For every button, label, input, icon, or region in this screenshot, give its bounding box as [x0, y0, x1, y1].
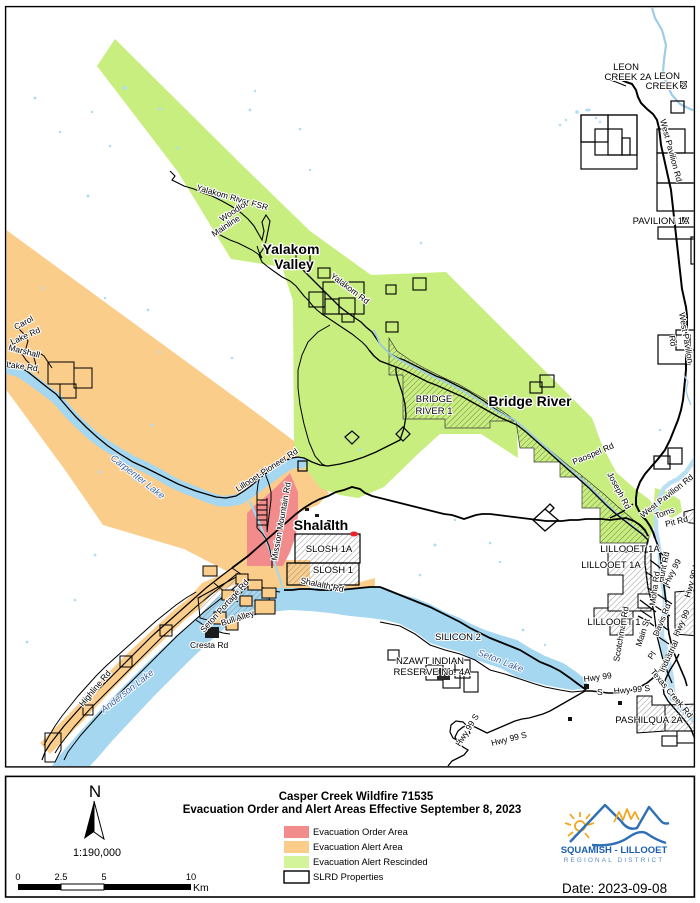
svg-text:Valley: Valley — [274, 256, 314, 272]
svg-text:LILLOOET 1A: LILLOOET 1A — [581, 560, 641, 571]
svg-text:Evacuation Order and Alert Are: Evacuation Order and Alert Areas Effecti… — [183, 804, 522, 816]
svg-text:Shalalth: Shalalth — [294, 517, 348, 533]
svg-text:Evacuation Order Area: Evacuation Order Area — [313, 826, 409, 837]
svg-text:PASHILQUA 2A: PASHILQUA 2A — [615, 715, 683, 726]
svg-text:Casper Creek Wildfire 71535: Casper Creek Wildfire 71535 — [279, 791, 434, 803]
svg-text:N: N — [89, 782, 101, 801]
svg-text:Yalakom: Yalakom — [263, 241, 320, 257]
svg-text:Bridge River: Bridge River — [488, 393, 572, 409]
svg-text:Rd: Rd — [667, 335, 679, 348]
svg-text:Cresta Rd: Cresta Rd — [190, 640, 229, 650]
svg-text:Evacuation Alert Area: Evacuation Alert Area — [313, 841, 403, 852]
svg-text:CREEK 2: CREEK 2 — [646, 81, 687, 92]
svg-text:2.5: 2.5 — [55, 872, 68, 882]
svg-text:NZAWT INDIAN: NZAWT INDIAN — [396, 656, 464, 667]
svg-text:SLOSH 1A: SLOSH 1A — [306, 544, 353, 555]
svg-text:RESERVE No. 4A: RESERVE No. 4A — [394, 667, 472, 678]
svg-text:Evacuation Alert Rescinded: Evacuation Alert Rescinded — [313, 856, 428, 867]
svg-text:BRIDGE: BRIDGE — [416, 394, 452, 405]
svg-text:Km: Km — [193, 882, 209, 894]
svg-text:1:190,000: 1:190,000 — [73, 847, 121, 859]
svg-text:PAVILION 1A: PAVILION 1A — [633, 216, 690, 227]
svg-text:Date: 2023-09-08: Date: 2023-09-08 — [562, 881, 667, 896]
svg-text:10: 10 — [186, 872, 196, 882]
svg-text:SILICON 2: SILICON 2 — [435, 632, 481, 643]
svg-text:0: 0 — [15, 872, 20, 882]
svg-text:S: S — [597, 687, 603, 697]
svg-text:SQUAMISH - LILLOOET: SQUAMISH - LILLOOET — [561, 845, 668, 856]
svg-text:5: 5 — [101, 872, 106, 882]
svg-text:RIVER 1: RIVER 1 — [416, 406, 453, 417]
svg-text:SLRD Properties: SLRD Properties — [313, 871, 384, 882]
svg-text:LILLOOET 1A: LILLOOET 1A — [600, 544, 660, 555]
svg-text:LILLOOET 1: LILLOOET 1 — [587, 617, 640, 628]
svg-text:SLOSH 1: SLOSH 1 — [313, 565, 353, 576]
svg-text:REGIONAL DISTRICT: REGIONAL DISTRICT — [564, 857, 665, 864]
